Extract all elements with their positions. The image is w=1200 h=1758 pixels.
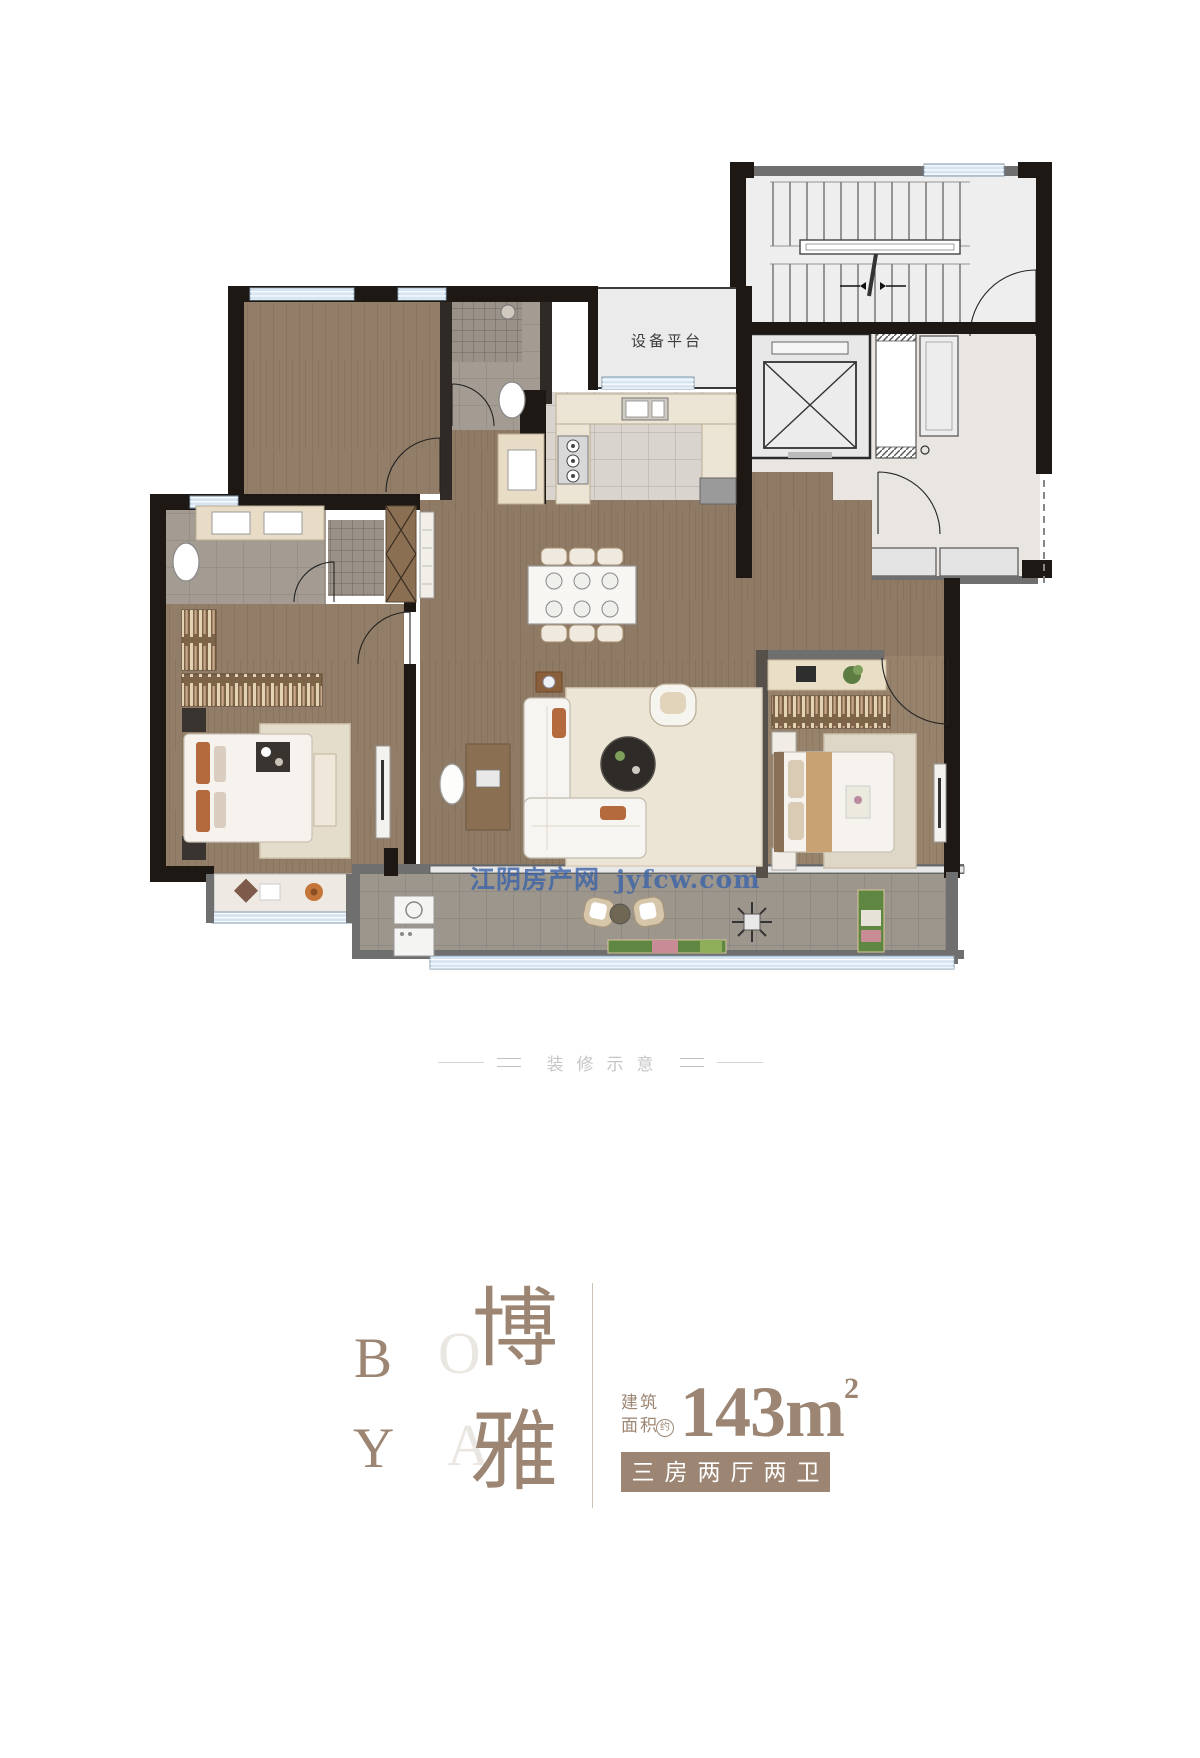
stairs-upper-flight xyxy=(770,182,970,246)
pillow xyxy=(788,802,804,840)
wall xyxy=(446,286,596,302)
vertical-divider xyxy=(592,1283,593,1508)
pillow xyxy=(788,760,804,798)
stove xyxy=(558,436,588,484)
wall xyxy=(228,286,244,512)
nightstand xyxy=(772,732,796,754)
area-label-line2: 面积 xyxy=(621,1417,659,1434)
desk xyxy=(768,660,886,690)
caption-ornament-bar xyxy=(680,1058,704,1067)
nightstand xyxy=(182,708,206,732)
area-superscript: 2 xyxy=(844,1372,858,1405)
bench xyxy=(314,754,336,826)
brand-hanzi-bottom: 雅 xyxy=(470,1408,558,1496)
laptop xyxy=(476,770,500,787)
area-number: 143 xyxy=(680,1372,785,1452)
area-value: 143m2 xyxy=(680,1376,858,1448)
wall xyxy=(768,650,884,660)
tv xyxy=(938,778,941,828)
headboard xyxy=(774,752,784,852)
sofa-pillow xyxy=(600,806,626,820)
brand-letter-b: B xyxy=(354,1330,392,1387)
stair-handrail xyxy=(800,240,960,254)
brand-letter-y: Y xyxy=(353,1420,394,1477)
caption-ornament-line xyxy=(717,1062,763,1063)
wardrobe-cross xyxy=(386,506,416,602)
coffee-table xyxy=(601,737,655,791)
cabinet xyxy=(420,512,434,598)
planter xyxy=(858,890,884,952)
decoration-caption: 装修示意 xyxy=(0,1050,1200,1075)
layout-tag-box: 三房两厅两卫 xyxy=(621,1452,830,1492)
wall xyxy=(1036,162,1052,474)
wall xyxy=(956,322,1040,334)
vent-shaft xyxy=(876,330,916,458)
wall xyxy=(588,286,598,390)
lounge-chair xyxy=(632,895,666,928)
entry-cabinet xyxy=(940,548,1018,576)
sofa-pillow xyxy=(552,708,566,738)
pillow xyxy=(260,884,280,900)
approx-mark: 约 xyxy=(656,1419,674,1437)
dining-set xyxy=(528,548,636,642)
patio-table xyxy=(610,904,630,924)
shower-head xyxy=(501,305,515,319)
wall xyxy=(352,872,360,956)
layout-tag-text: 三房两厅两卫 xyxy=(622,1461,830,1484)
bed xyxy=(774,752,894,852)
wall xyxy=(736,286,752,578)
watermark: 江阴房产网 jyfcw.com xyxy=(470,860,761,896)
tv xyxy=(381,760,384,820)
page: 设备平台 江阴房产网 jyfcw.com 装修示意 B O 博 Y A 雅 建筑… xyxy=(0,0,1200,1758)
dining-chair xyxy=(541,548,567,565)
watermark-site-name: 江阴房产网 xyxy=(470,860,600,896)
toilet xyxy=(173,543,199,581)
pillow xyxy=(214,792,226,828)
utility-closet xyxy=(920,336,958,436)
toilet xyxy=(499,382,525,418)
sink xyxy=(264,512,302,534)
sink xyxy=(212,512,250,534)
bay-window-seat xyxy=(214,874,352,912)
desk-chair xyxy=(440,764,464,804)
wall xyxy=(440,302,452,500)
pillow xyxy=(214,746,226,782)
pillow xyxy=(196,742,210,784)
blanket xyxy=(806,752,832,852)
bed-tray xyxy=(256,742,290,772)
caption-ornament-bar xyxy=(497,1058,521,1067)
area-unit: m xyxy=(785,1372,844,1452)
wall xyxy=(404,664,416,872)
wall xyxy=(152,866,214,882)
elevator xyxy=(750,334,870,458)
pillow xyxy=(196,790,210,832)
bed xyxy=(184,734,312,842)
area-label-line1: 建筑 xyxy=(621,1394,659,1411)
drying-rack xyxy=(732,902,772,942)
dining-chair xyxy=(597,548,623,565)
dining-chair xyxy=(569,548,595,565)
floorplan-image xyxy=(0,0,1200,1000)
sink xyxy=(508,450,536,490)
wall xyxy=(746,322,958,334)
wall xyxy=(150,494,166,882)
dining-chair xyxy=(597,625,623,642)
equipment-platform-label: 设备平台 xyxy=(598,330,736,351)
caption-ornament-line xyxy=(438,1062,484,1063)
watermark-domain: jyfcw.com xyxy=(616,865,761,894)
caption-text: 装修示意 xyxy=(534,1050,667,1075)
brand-hanzi-top: 博 xyxy=(472,1286,558,1372)
laptop xyxy=(796,666,816,682)
wall xyxy=(540,302,552,404)
dining-chair xyxy=(569,625,595,642)
dining-chair xyxy=(541,625,567,642)
fridge xyxy=(700,478,736,504)
